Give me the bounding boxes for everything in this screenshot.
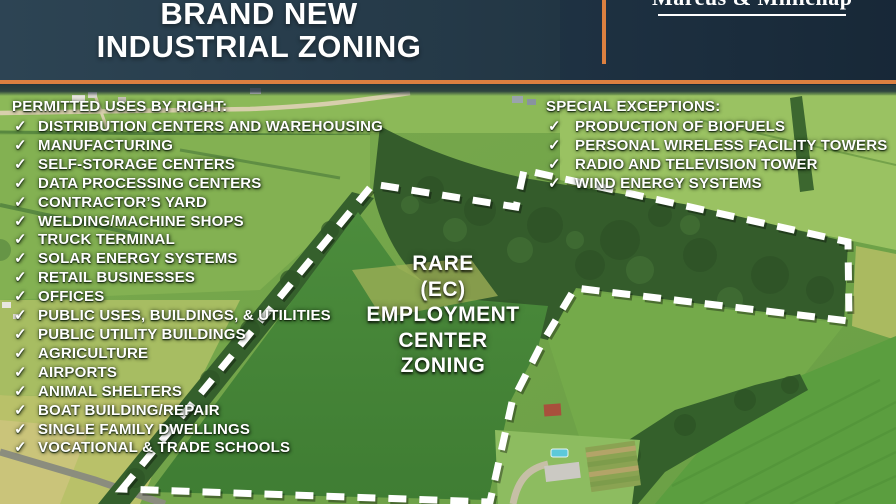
header-underband <box>0 84 896 96</box>
zoning-label-line: RARE <box>343 251 543 277</box>
list-item: ✓ SOLAR ENERGY SYSTEMS <box>12 250 383 269</box>
list-item-label: WIND ENERGY SYSTEMS <box>575 175 762 192</box>
list-item-label: RETAIL BUSINESSES <box>38 269 195 286</box>
zoning-label-line: EMPLOYMENT <box>343 302 543 328</box>
list-item-label: WELDING/MACHINE SHOPS <box>38 213 244 230</box>
brand-logo-text: Marcus & Millichap <box>652 0 852 11</box>
list-item: ✓ WELDING/MACHINE SHOPS <box>12 213 383 232</box>
list-item-label: DISTRIBUTION CENTERS AND WAREHOUSING <box>38 118 383 135</box>
list-item-label: PUBLIC UTILITY BUILDINGS <box>38 326 246 343</box>
check-icon: ✓ <box>14 288 27 307</box>
check-icon: ✓ <box>14 194 27 213</box>
check-icon: ✓ <box>548 118 561 137</box>
permitted-uses-list: PERMITTED USES BY RIGHT: ✓ DISTRIBUTION … <box>12 97 383 458</box>
list-item: ✓ RADIO AND TELEVISION TOWER <box>546 156 887 175</box>
permitted-uses-items: ✓ DISTRIBUTION CENTERS AND WAREHOUSING ✓… <box>12 118 383 458</box>
list-item: ✓ PUBLIC USES, BUILDINGS, & UTILITIES <box>12 307 383 326</box>
list-item: ✓ ANIMAL SHELTERS <box>12 383 383 402</box>
check-icon: ✓ <box>14 421 27 440</box>
list-item-label: ANIMAL SHELTERS <box>38 383 182 400</box>
zoning-label-line: ZONING <box>343 353 543 379</box>
check-icon: ✓ <box>14 269 27 288</box>
check-icon: ✓ <box>14 364 27 383</box>
check-icon: ✓ <box>14 326 27 345</box>
list-item: ✓ AIRPORTS <box>12 364 383 383</box>
title-line-1: BRAND NEW <box>20 0 498 30</box>
check-icon: ✓ <box>14 383 27 402</box>
list-item-label: MANUFACTURING <box>38 137 173 154</box>
check-icon: ✓ <box>14 137 27 156</box>
list-item: ✓ DISTRIBUTION CENTERS AND WAREHOUSING <box>12 118 383 137</box>
check-icon: ✓ <box>14 307 27 326</box>
list-item-label: AIRPORTS <box>38 364 117 381</box>
list-item: ✓ SELF-STORAGE CENTERS <box>12 156 383 175</box>
zoning-label: RARE (EC) EMPLOYMENT CENTER ZONING <box>343 251 543 379</box>
check-icon: ✓ <box>14 231 27 250</box>
check-icon: ✓ <box>548 137 561 156</box>
zoning-label-line: (EC) <box>343 277 543 303</box>
list-item: ✓ MANUFACTURING <box>12 137 383 156</box>
list-item-label: BOAT BUILDING/REPAIR <box>38 402 220 419</box>
check-icon: ✓ <box>14 213 27 232</box>
list-item: ✓ BOAT BUILDING/REPAIR <box>12 402 383 421</box>
check-icon: ✓ <box>548 156 561 175</box>
list-item-label: DATA PROCESSING CENTERS <box>38 175 262 192</box>
list-item-label: CONTRACTOR’S YARD <box>38 194 207 211</box>
check-icon: ✓ <box>14 118 27 137</box>
check-icon: ✓ <box>14 439 27 458</box>
list-item: ✓ PRODUCTION OF BIOFUELS <box>546 118 887 137</box>
list-item: ✓ SINGLE FAMILY DWELLINGS <box>12 421 383 440</box>
brand-logo-underline <box>658 14 846 16</box>
list-item: ✓ CONTRACTOR’S YARD <box>12 194 383 213</box>
list-item-label: VOCATIONAL & TRADE SCHOOLS <box>38 439 290 456</box>
list-item: ✓ RETAIL BUSINESSES <box>12 269 383 288</box>
list-item-label: OFFICES <box>38 288 104 305</box>
check-icon: ✓ <box>14 402 27 421</box>
list-item-label: TRUCK TERMINAL <box>38 231 175 248</box>
permitted-uses-heading: PERMITTED USES BY RIGHT: <box>12 97 383 117</box>
check-icon: ✓ <box>14 345 27 364</box>
list-item: ✓ TRUCK TERMINAL <box>12 231 383 250</box>
list-item-label: PERSONAL WIRELESS FACILITY TOWERS <box>575 137 887 154</box>
orange-divider-vertical <box>602 0 606 64</box>
check-icon: ✓ <box>548 175 561 194</box>
list-item: ✓ PUBLIC UTILITY BUILDINGS <box>12 326 383 345</box>
check-icon: ✓ <box>14 156 27 175</box>
list-item: ✓ PERSONAL WIRELESS FACILITY TOWERS <box>546 137 887 156</box>
zoning-infographic: BRAND NEW INDUSTRIAL ZONING Marcus & Mil… <box>0 0 896 504</box>
list-item-label: SOLAR ENERGY SYSTEMS <box>38 250 238 267</box>
zoning-label-line: CENTER <box>343 328 543 354</box>
orange-divider-horizontal <box>0 80 896 85</box>
list-item: ✓ VOCATIONAL & TRADE SCHOOLS <box>12 439 383 458</box>
list-item: ✓ DATA PROCESSING CENTERS <box>12 175 383 194</box>
list-item-label: AGRICULTURE <box>38 345 148 362</box>
list-item: ✓ AGRICULTURE <box>12 345 383 364</box>
list-item-label: PRODUCTION OF BIOFUELS <box>575 118 785 135</box>
list-item: ✓ WIND ENERGY SYSTEMS <box>546 175 887 194</box>
check-icon: ✓ <box>14 250 27 269</box>
check-icon: ✓ <box>14 175 27 194</box>
special-exceptions-list: SPECIAL EXCEPTIONS: ✓ PRODUCTION OF BIOF… <box>546 97 887 194</box>
page-title: BRAND NEW INDUSTRIAL ZONING <box>20 0 498 63</box>
list-item-label: SELF-STORAGE CENTERS <box>38 156 235 173</box>
list-item-label: SINGLE FAMILY DWELLINGS <box>38 421 250 438</box>
special-exceptions-items: ✓ PRODUCTION OF BIOFUELS ✓ PERSONAL WIRE… <box>546 118 887 194</box>
list-item-label: RADIO AND TELEVISION TOWER <box>575 156 818 173</box>
special-exceptions-heading: SPECIAL EXCEPTIONS: <box>546 97 887 117</box>
brand-logo: Marcus & Millichap <box>652 0 852 18</box>
list-item-label: PUBLIC USES, BUILDINGS, & UTILITIES <box>38 307 331 324</box>
title-line-2: INDUSTRIAL ZONING <box>20 30 498 63</box>
list-item: ✓ OFFICES <box>12 288 383 307</box>
